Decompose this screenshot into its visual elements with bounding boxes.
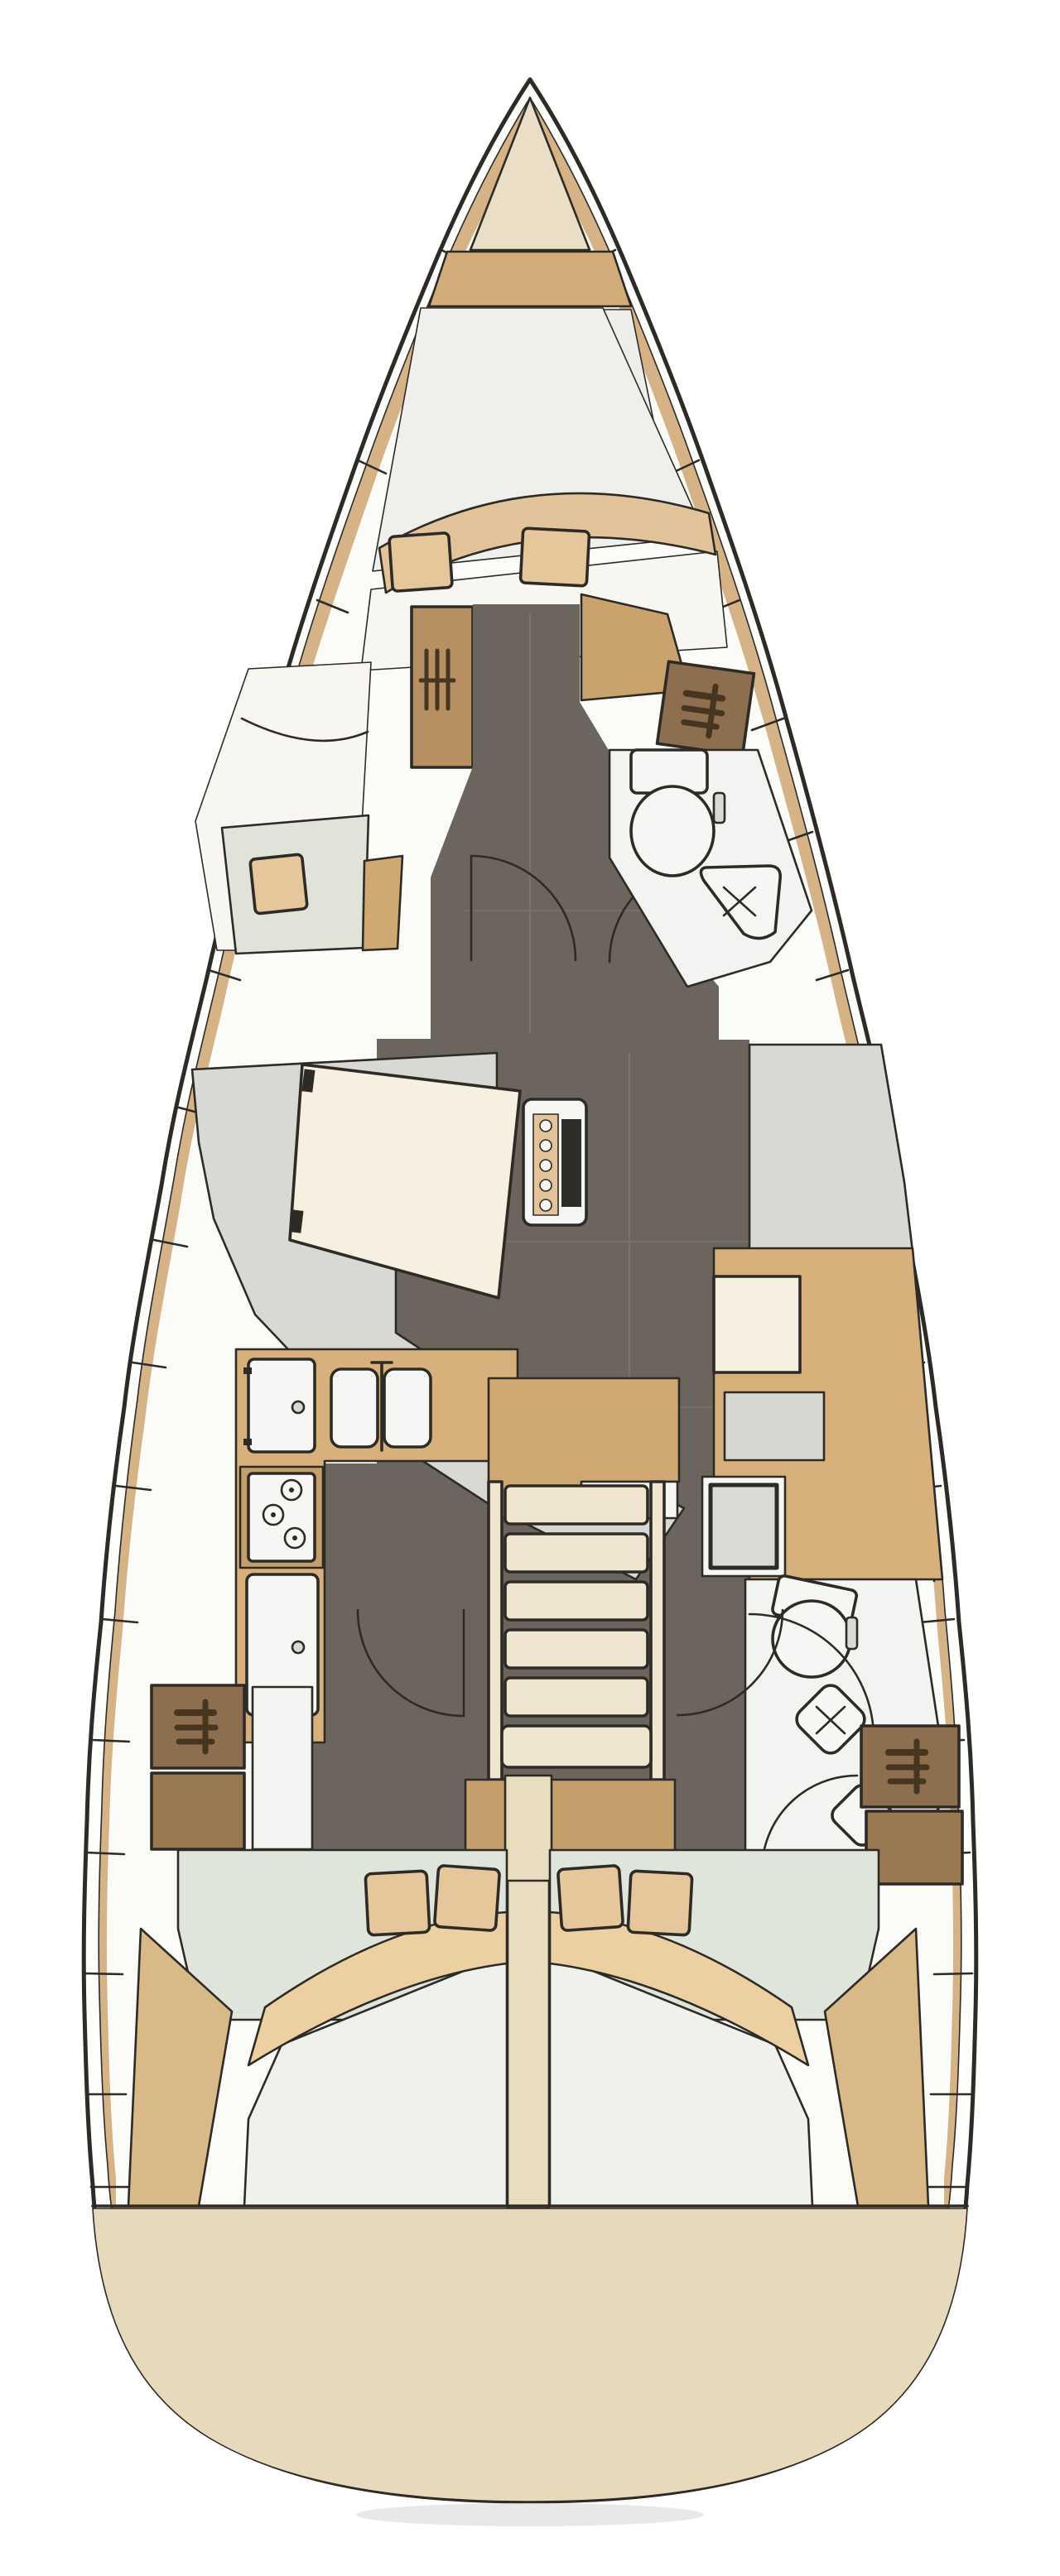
nav-locker-top — [714, 1276, 800, 1372]
fridge-hinge — [243, 1367, 252, 1374]
step — [505, 1486, 648, 1524]
aft-floor-starboard — [675, 1598, 748, 1850]
folding-table-leaf — [523, 1099, 586, 1225]
starboard-aft-locker-bottom — [866, 1811, 962, 1884]
step — [505, 1582, 648, 1620]
aft-toilet-lever — [846, 1617, 857, 1649]
step — [505, 1678, 648, 1716]
zone-companionway — [465, 1482, 675, 1883]
stove-burner-center — [289, 1487, 294, 1492]
locker-shelves-icon — [889, 1742, 927, 1791]
transom-deck — [93, 2208, 967, 2502]
hinge-dot — [540, 1140, 552, 1151]
oven-handle-knob — [292, 1641, 304, 1653]
stove-burner-center — [292, 1536, 297, 1540]
locker-shelves-icon — [177, 1702, 215, 1752]
forward-toilet-bowl — [631, 786, 714, 876]
hinge-dot — [540, 1160, 552, 1171]
louver-cabinet — [412, 607, 473, 767]
starboard-berth-pillow — [628, 1871, 692, 1935]
aft-toilet — [772, 1574, 858, 1677]
plank-seam — [934, 1973, 972, 1974]
port-berth-pillow — [365, 1871, 430, 1935]
forward-vanity-desk — [363, 856, 402, 950]
port-cabin-door-panel — [253, 1687, 312, 1849]
starboard-settee — [749, 1045, 913, 1252]
fridge-hinge — [243, 1439, 252, 1445]
aft-cabin-divider — [508, 1881, 549, 2208]
anchor-locker-lid — [429, 252, 631, 306]
chart-table — [711, 1485, 777, 1568]
forward-seat-pillow — [250, 854, 308, 914]
hinge-dot — [540, 1180, 552, 1191]
zone-nav-station — [702, 1248, 942, 1579]
folding-leaf-notch — [561, 1119, 581, 1207]
zone-transom — [93, 2206, 967, 2526]
deck-plan-canvas — [0, 0, 1060, 2576]
step — [502, 1726, 651, 1767]
fridge-knob — [292, 1401, 304, 1413]
galley-sink-basin-left — [331, 1369, 378, 1447]
hinge-dot — [540, 1120, 552, 1132]
starboard-berth-pillow — [558, 1866, 624, 1931]
v-berth-pillow-port — [389, 533, 452, 592]
louver-vent-icon — [421, 651, 454, 709]
forward-toilet-lever — [714, 793, 725, 823]
hull-shadow — [356, 2503, 704, 2526]
port-berth-pillow — [435, 1866, 500, 1931]
yacht-floor-plan — [0, 0, 1060, 2576]
plank-seam — [84, 1973, 123, 1974]
aft-floor-port — [313, 1602, 465, 1850]
hinge-dot — [540, 1199, 552, 1211]
step — [505, 1630, 648, 1668]
port-aft-locker-bottom — [152, 1773, 244, 1849]
companionway-rail-port — [489, 1482, 502, 1780]
step — [505, 1534, 648, 1572]
nav-seat — [725, 1392, 824, 1460]
companionway-landing — [505, 1776, 552, 1883]
aft-toilet-bowl — [773, 1601, 850, 1677]
stove-burner-center — [271, 1512, 276, 1517]
galley-sink-basin-right — [384, 1369, 431, 1447]
companionway-rail-starboard — [651, 1482, 664, 1780]
v-berth-pillow-starboard — [520, 528, 589, 586]
